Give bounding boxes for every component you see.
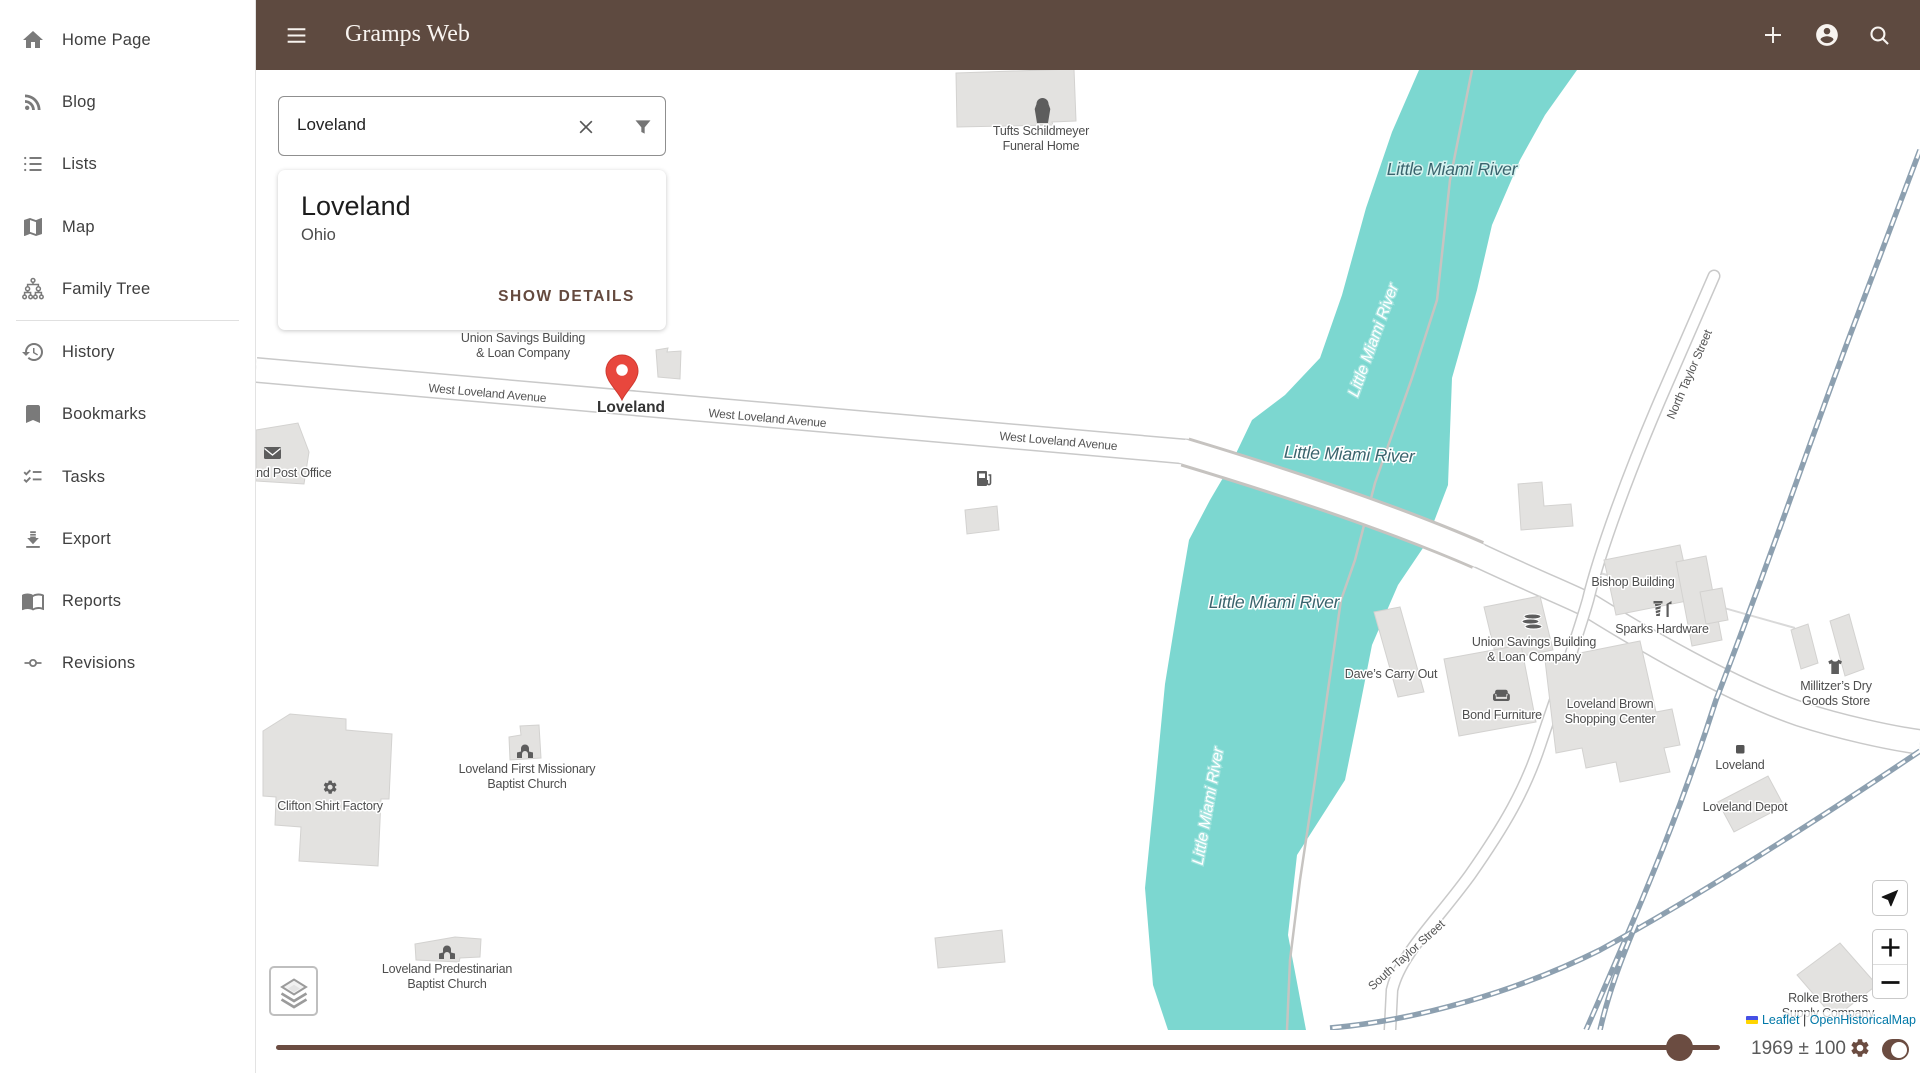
svg-text:Shopping Center: Shopping Center — [1565, 712, 1656, 726]
svg-text:Loveland Predestinarian: Loveland Predestinarian — [382, 962, 512, 976]
svg-text:Union Savings Building: Union Savings Building — [461, 331, 585, 345]
svg-text:& Loan Company: & Loan Company — [1487, 650, 1582, 664]
svg-text:Little Miami River: Little Miami River — [1209, 592, 1341, 612]
svg-text:South Taylor Street: South Taylor Street — [1365, 916, 1448, 993]
svg-text:Goods Store: Goods Store — [1802, 694, 1870, 708]
svg-text:Dave’s Carry Out: Dave’s Carry Out — [1345, 667, 1438, 681]
svg-text:Bishop Building: Bishop Building — [1591, 575, 1674, 589]
svg-text:Loveland Depot: Loveland Depot — [1703, 800, 1788, 814]
svg-text:Loveland Post Office: Loveland Post Office — [256, 466, 332, 480]
svg-text:Baptist Church: Baptist Church — [407, 977, 486, 991]
svg-text:Loveland Brown: Loveland Brown — [1567, 697, 1654, 711]
svg-text:Bond Furniture: Bond Furniture — [1462, 708, 1542, 722]
svg-text:Little Miami River: Little Miami River — [1387, 159, 1519, 179]
svg-text:Millitzer’s Dry: Millitzer’s Dry — [1800, 679, 1872, 693]
svg-text:Funeral Home: Funeral Home — [1003, 139, 1080, 153]
svg-text:Union Savings Building: Union Savings Building — [1472, 635, 1596, 649]
svg-text:Loveland: Loveland — [1715, 758, 1764, 772]
svg-text:Tufts Schildmeyer: Tufts Schildmeyer — [993, 124, 1089, 138]
svg-text:Sparks Hardware: Sparks Hardware — [1615, 622, 1709, 636]
svg-text:Clifton Shirt Factory: Clifton Shirt Factory — [277, 799, 384, 813]
svg-text:Baptist Church: Baptist Church — [487, 777, 566, 791]
svg-text:Loveland: Loveland — [597, 399, 665, 416]
svg-text:& Loan Company: & Loan Company — [476, 346, 571, 360]
svg-text:Loveland First Missionary: Loveland First Missionary — [459, 762, 597, 776]
svg-text:Rolke Brothers: Rolke Brothers — [1788, 991, 1868, 1005]
